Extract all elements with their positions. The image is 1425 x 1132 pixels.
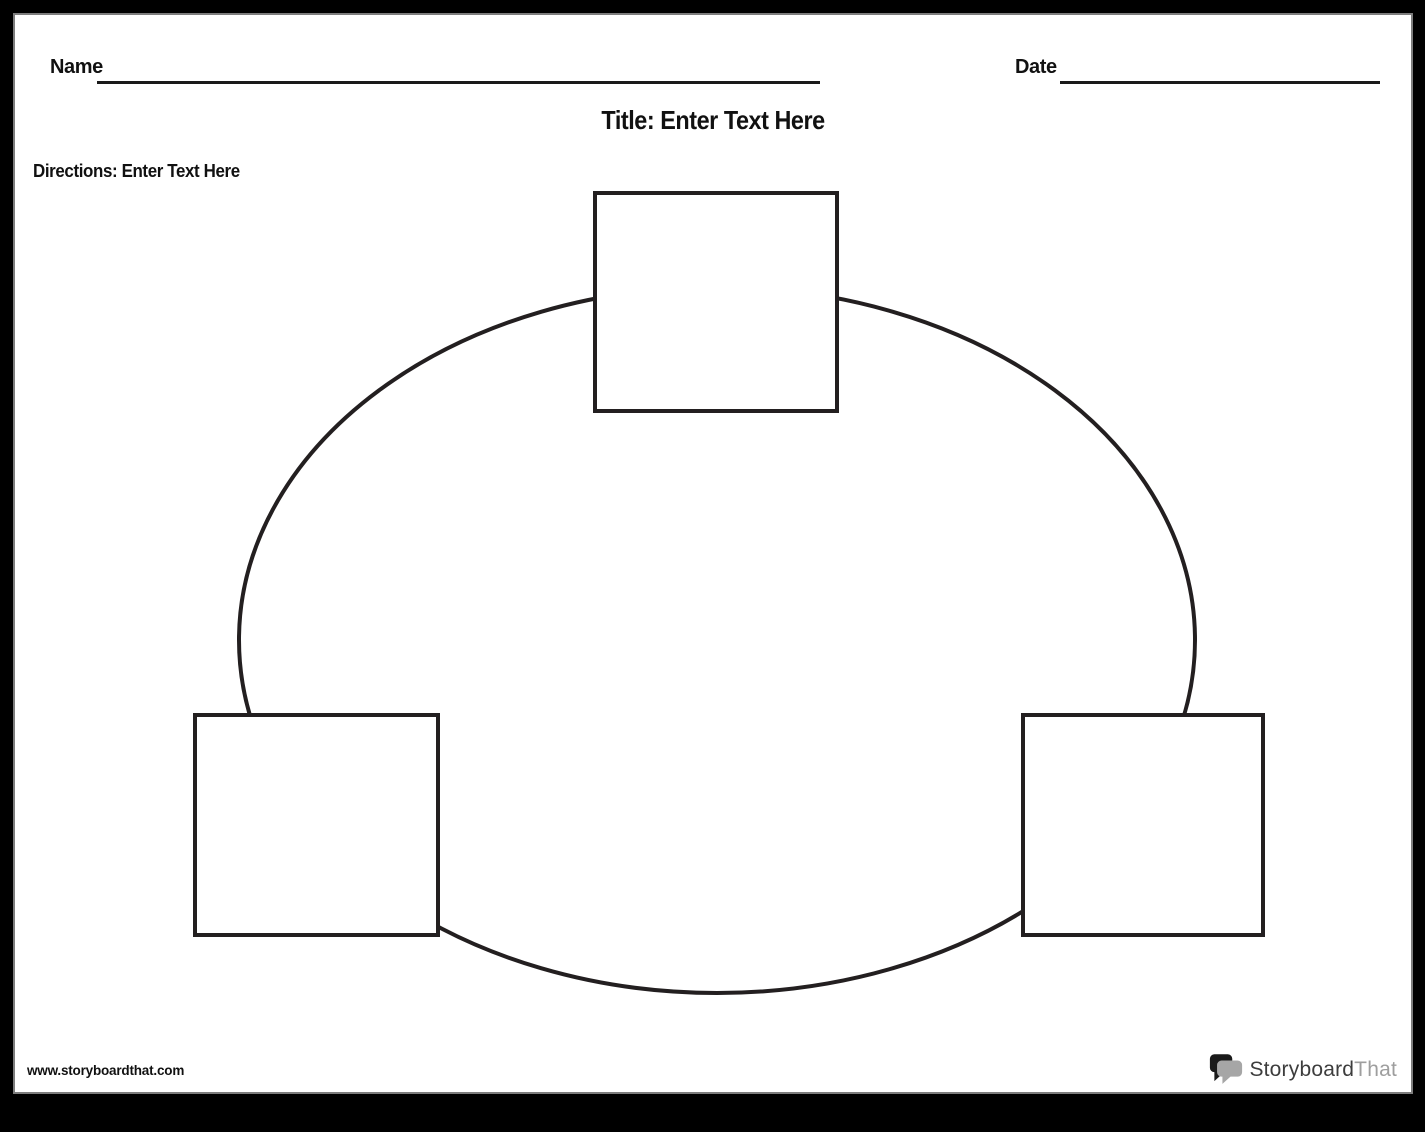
storyboardthat-logo: StoryboardThat [1209,1053,1397,1086]
text-box-bottom-right[interactable] [1021,713,1265,937]
logo-text-secondary: That [1354,1058,1397,1081]
website-url: www.storyboardthat.com [27,1063,184,1078]
logo-text-primary: Storyboard [1249,1058,1354,1081]
speech-bubbles-icon [1209,1053,1243,1086]
logo-text: StoryboardThat [1249,1058,1397,1082]
text-box-top[interactable] [593,191,839,413]
text-box-bottom-left[interactable] [193,713,440,937]
worksheet-page: Name Date Title: Enter Text Here Directi… [13,13,1413,1094]
